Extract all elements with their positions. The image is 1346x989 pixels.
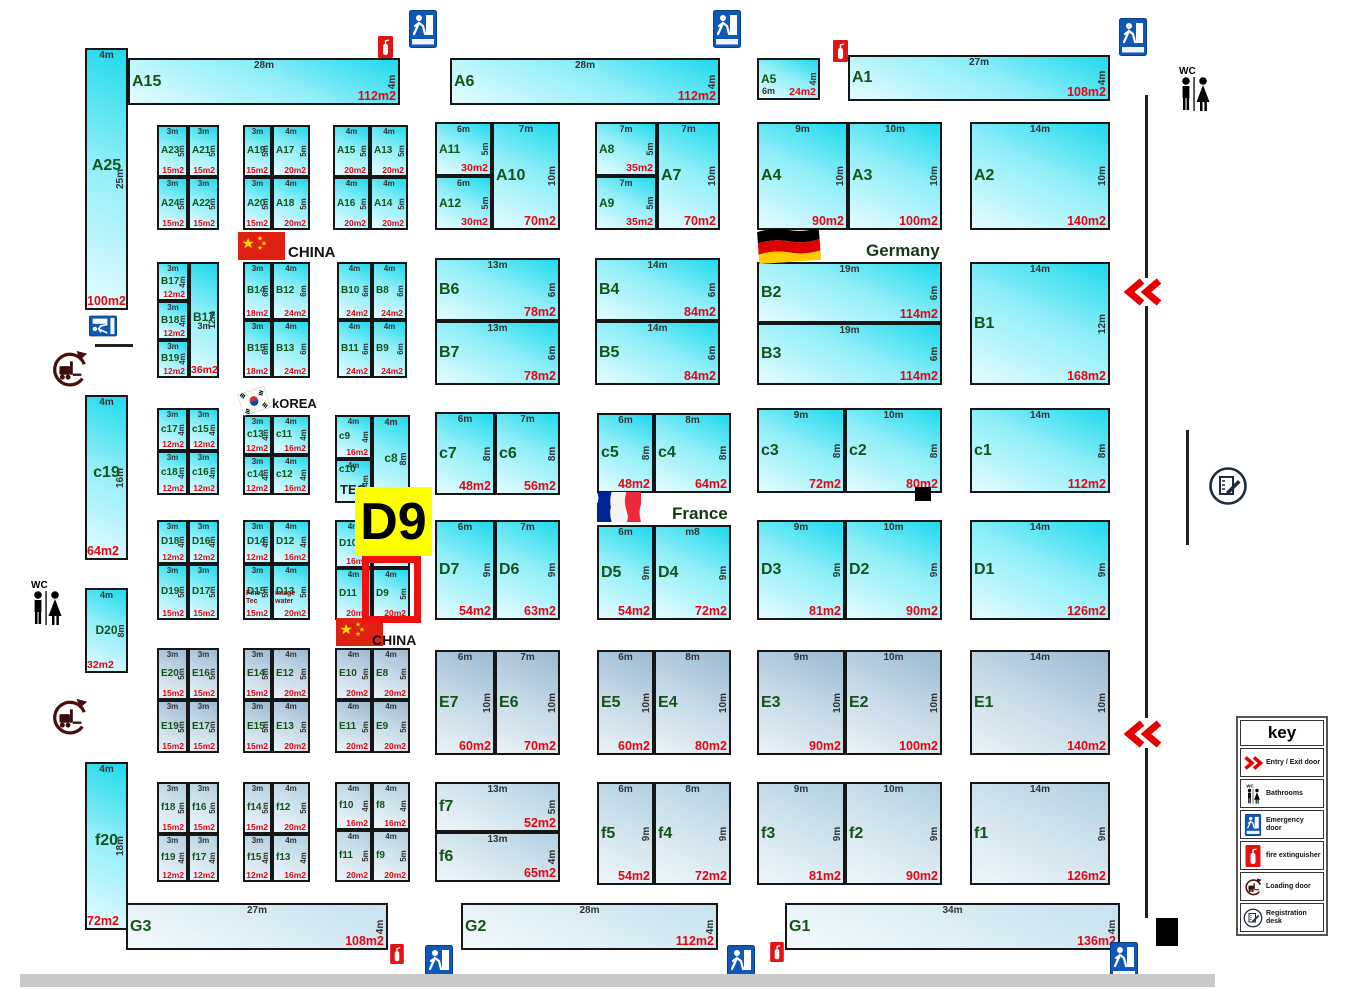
booth-id-label: B9: [376, 344, 389, 354]
booth-E17[interactable]: 3m5mE1715m2: [188, 700, 219, 753]
booth-width-label: 3m: [159, 651, 186, 659]
booth-id-label: c18: [161, 468, 178, 478]
booth-depth-label: 4m: [300, 536, 308, 548]
booth-D12[interactable]: 4m4mD1216m2: [272, 520, 310, 564]
booth-width-label: 3m: [159, 265, 187, 273]
booth-id-label: f11: [339, 851, 353, 861]
booth-D17[interactable]: 3m5mD1715m2: [188, 564, 219, 620]
booth-B14[interactable]: 3m6mB1418m2: [243, 262, 272, 320]
booth-width-label: 4m: [374, 418, 408, 427]
booth-width-label: 3m: [159, 837, 186, 845]
booth-depth-label: 9m: [548, 563, 558, 577]
booth-id-label: D3: [761, 562, 781, 578]
booth-width-label: 4m: [274, 651, 308, 659]
booth-c18[interactable]: 3m4mc1812m2: [157, 451, 188, 495]
booth-area-label: 15m2: [162, 689, 184, 698]
booth-G3[interactable]: 27m4mG3108m2: [126, 903, 388, 950]
booth-f4[interactable]: 8m9mf472m2: [654, 782, 731, 885]
booth-width-label: 3m: [190, 785, 217, 793]
booth-B17[interactable]: 12m3mB1736m2: [189, 262, 219, 378]
booth-f11[interactable]: 4m5mf1120m2: [335, 830, 372, 882]
booth-width-label: 7m: [597, 179, 655, 188]
booth-width-label: 4m: [274, 458, 308, 466]
booth-width-label: 13m: [437, 324, 558, 334]
booth-D15[interactable]: 3m5mD15Fine Tec15m2: [243, 564, 272, 620]
booth-id-label: B15: [247, 344, 265, 354]
booth-area-label: 16m2: [284, 871, 306, 880]
booth-A8[interactable]: 7m5mA835m2: [595, 122, 657, 176]
booth-area-label: 16m2: [284, 444, 306, 453]
fire-extinguisher-icon: [770, 942, 784, 962]
booth-depth-label: 4m: [388, 74, 398, 88]
booth-A19[interactable]: 3m5mA1915m2: [243, 125, 272, 177]
booth-depth-label: 5m: [362, 721, 370, 733]
booth-B8[interactable]: 4m6mB824m2: [372, 262, 407, 320]
booth-width-label: 4m: [274, 180, 308, 188]
booth-id-label: B10: [341, 286, 359, 296]
booth-depth-label: 4m: [376, 919, 386, 933]
booth-area-label: 72m2: [695, 870, 727, 883]
booth-A22[interactable]: 3m5mA2215m2: [188, 177, 219, 230]
booth-width-label: 3m: [245, 418, 270, 426]
booth-width-label: 4m: [374, 833, 408, 841]
booth-width-label: 6m: [599, 653, 652, 663]
booth-id-label: c10: [339, 465, 356, 475]
booth-id-label: B13: [276, 344, 294, 354]
booth-depth-label: 5m: [400, 668, 408, 680]
booth-B17[interactable]: 3m4mB1712m2: [157, 262, 189, 301]
booth-width-label: 6m: [599, 528, 652, 538]
booth-G2[interactable]: 28m4mG2112m2: [461, 903, 718, 950]
booth-D18[interactable]: 3m4mD1812m2: [157, 520, 188, 564]
booth-D5[interactable]: 6m9mD554m2: [597, 525, 654, 620]
booth-id-label: A25: [87, 158, 126, 174]
emergency-exit-icon: [1243, 814, 1263, 836]
booth-depth-label: 4m: [179, 276, 187, 288]
booth-depth-label: 9m: [930, 826, 940, 840]
booth-width-label: 28m: [452, 61, 718, 71]
booth-D2[interactable]: 10m9mD290m2: [845, 520, 942, 620]
booth-id-label: E19: [161, 722, 179, 732]
booth-id-label: f12: [276, 803, 290, 813]
wc-icon: WC: [1243, 783, 1263, 805]
booth-depth-label: 4m: [179, 353, 187, 365]
booth-c11[interactable]: 4m4mc1116m2: [272, 415, 310, 455]
booth-f12[interactable]: 4m5mf1220m2: [272, 782, 310, 834]
booth-width-label: 6m: [437, 523, 493, 533]
booth-depth-label: 6m: [708, 282, 718, 296]
booth-area-label: 20m2: [344, 166, 366, 175]
booth-area-label: 12m2: [246, 553, 268, 562]
booth-A3[interactable]: 10m10mA3100m2: [848, 122, 942, 230]
booth-area-label: 81m2: [809, 605, 841, 618]
booth-depth-label: 8m: [642, 446, 652, 460]
booth-A4[interactable]: 9m10mA490m2: [757, 122, 848, 230]
booth-depth-label: 9m: [642, 826, 652, 840]
booth-area-label: 56m2: [524, 480, 556, 493]
emergency-exit-icon: [409, 10, 437, 48]
booth-f2[interactable]: 10m9mf290m2: [845, 782, 942, 885]
booth-width-label: 4m: [374, 265, 405, 273]
booth-id-label: A12: [439, 197, 461, 209]
booth-width-label: 4m: [87, 591, 126, 600]
booth-id-label: B2: [761, 285, 781, 301]
booth-id-label: E11: [339, 722, 356, 732]
booth-area-label: 16m2: [284, 484, 306, 493]
booth-area-label: 140m2: [1067, 740, 1106, 753]
booth-D7[interactable]: 6m9mD754m2: [435, 520, 495, 620]
booth-E15[interactable]: 3m5mE1515m2: [243, 700, 272, 753]
booth-area-label: 108m2: [1067, 86, 1106, 99]
booth-area-label: 70m2: [684, 215, 716, 228]
booth-f5[interactable]: 6m9mf554m2: [597, 782, 654, 885]
booth-id-label: A20: [247, 199, 265, 209]
booth-B5[interactable]: 14m6mB584m2: [595, 321, 720, 385]
booth-width-label: 9m: [759, 523, 843, 533]
booth-E19[interactable]: 3m5mE1915m2: [157, 700, 188, 753]
booth-area-label: 12m2: [193, 871, 215, 880]
booth-depth-label: 5m: [178, 802, 186, 814]
booth-id-label: c7: [439, 446, 457, 462]
booth-area-label: 114m2: [900, 308, 938, 321]
booth-width-label: 3m: [190, 523, 217, 531]
booth-E1[interactable]: 14m10mE1140m2: [970, 650, 1110, 755]
booth-D6[interactable]: 7m9mD663m2: [495, 520, 560, 620]
booth-c4[interactable]: 8m8mc464m2: [654, 413, 731, 493]
booth-width-label: 3m: [245, 180, 270, 188]
booth-depth-label: 10m: [930, 166, 940, 186]
booth-D13[interactable]: 4m5mD13image water20m2: [272, 564, 310, 620]
booth-area-label: 30m2: [461, 217, 488, 228]
booth-width-label: 3m: [190, 128, 217, 136]
booth-f19[interactable]: 3m4mf1912m2: [157, 834, 188, 882]
map-key-legend: key Entry / Exit doorWCBathroomsEmergenc…: [1236, 716, 1328, 936]
booth-depth-label: 5m: [646, 142, 655, 155]
svg-text:WC: WC: [1179, 66, 1196, 77]
booth-c15[interactable]: 3m4mc1512m2: [188, 408, 219, 451]
booth-width-label: 3m: [159, 567, 186, 575]
booth-B1[interactable]: 14m12mB1168m2: [970, 262, 1110, 385]
booth-A16[interactable]: 4m5mA1620m2: [333, 177, 370, 230]
booth-width-label: 6m: [437, 179, 490, 188]
booth-depth-label: 8m: [548, 446, 558, 460]
booth-A12[interactable]: 6m5mA1230m2: [435, 176, 492, 230]
booth-area-label: 60m2: [459, 740, 491, 753]
booth-id-label: c8: [374, 452, 408, 464]
booth-width-label: 4m: [374, 651, 408, 659]
booth-id-label: E20: [161, 669, 179, 679]
booth-c3[interactable]: 9m8mc372m2: [757, 408, 845, 493]
booth-depth-label: 5m: [300, 198, 308, 210]
booth-width-label: 4m: [339, 265, 370, 273]
booth-id-label: c3: [761, 443, 779, 459]
booth-width-label: 4m: [87, 51, 126, 61]
booth-A21[interactable]: 3m5mA2115m2: [188, 125, 219, 177]
booth-id-label: A2: [974, 168, 994, 184]
booth-f3[interactable]: 9m9mf381m2: [757, 782, 845, 885]
entry-exit-chevrons-icon: [1243, 752, 1263, 774]
booth-D1[interactable]: 14m9mD1126m2: [970, 520, 1110, 620]
booth-area-label: 12m2: [162, 440, 184, 449]
booth-area-label: 20m2: [284, 689, 306, 698]
booth-c14[interactable]: 3m4mc1412m2: [243, 455, 272, 495]
booth-id-label: A24: [161, 199, 179, 209]
booth-A10[interactable]: 7m10mA1070m2: [492, 122, 560, 230]
booth-id-label: E17: [192, 722, 210, 732]
booth-id-label: f13: [276, 853, 290, 863]
booth-D16[interactable]: 3m4mD1612m2: [188, 520, 219, 564]
booth-E14[interactable]: 3m5mE1415m2: [243, 648, 272, 700]
booth-depth-label: 8m: [833, 443, 843, 457]
booth-area-label: 100m2: [899, 740, 938, 753]
booth-area-label: 64m2: [695, 478, 727, 491]
booth-id-label: A8: [599, 143, 614, 155]
booth-B15[interactable]: 3m6mB1518m2: [243, 320, 272, 378]
booth-B10[interactable]: 4m6mB1024m2: [337, 262, 372, 320]
wall-line: [95, 344, 133, 347]
svg-text:WC: WC: [31, 580, 48, 591]
booth-E3[interactable]: 9m10mE390m2: [757, 650, 845, 755]
booth-B13[interactable]: 4m6mB1324m2: [272, 320, 310, 378]
booth-A15[interactable]: 28m4mA15112m2: [128, 58, 400, 105]
booth-area-label: 15m2: [193, 689, 215, 698]
booth-width-label: 14m: [597, 324, 718, 334]
booth-id-label: E5: [601, 695, 621, 711]
booth-depth-label: 6m: [930, 347, 940, 361]
booth-id-label: A7: [661, 168, 681, 184]
booth-width-label: 3m: [245, 837, 270, 845]
booth-area-label: 20m2: [382, 219, 404, 228]
booth-c19[interactable]: 4m16mc1964m2: [85, 395, 128, 560]
booth-area-label: 15m2: [246, 823, 268, 832]
booth-width-label: 8m: [656, 785, 729, 795]
booth-c7[interactable]: 6m8mc748m2: [435, 412, 495, 495]
booth-id-label: f7: [439, 799, 453, 815]
booth-E11[interactable]: 4m5mE1120m2: [335, 700, 372, 753]
booth-E4[interactable]: 8m10mE480m2: [654, 650, 731, 755]
key-title: key: [1240, 720, 1324, 746]
booth-width-label: 4m: [337, 833, 370, 841]
booth-E2[interactable]: 10m10mE2100m2: [845, 650, 942, 755]
booth-area-label: 20m2: [346, 742, 368, 751]
booth-id-label: E7: [439, 695, 459, 711]
booth-id-label: D17: [192, 587, 210, 597]
booth-E8[interactable]: 4m5mE820m2: [372, 648, 410, 700]
booth-B19[interactable]: 3m4mB1912m2: [157, 340, 189, 378]
booth-area-label: 15m2: [193, 219, 215, 228]
booth-B7[interactable]: 13m6mB778m2: [435, 321, 560, 385]
booth-B18[interactable]: 3m4mB1812m2: [157, 301, 189, 340]
booth-id-label: c14: [247, 470, 264, 480]
booth-id-label: c19: [87, 465, 126, 481]
booth-area-label: 112m2: [678, 90, 716, 103]
booth-depth-label: 5m: [178, 721, 186, 733]
booth-A18[interactable]: 4m5mA1820m2: [272, 177, 310, 230]
booth-A20[interactable]: 3m5mA2015m2: [243, 177, 272, 230]
booth-B11[interactable]: 4m6mB1124m2: [337, 320, 372, 378]
booth-width-label: 4m: [337, 703, 370, 711]
booth-E12[interactable]: 4m5mE1220m2: [272, 648, 310, 700]
d9-highlight-label: D9: [355, 487, 432, 556]
booth-c5[interactable]: 6m8mc548m2: [597, 413, 654, 493]
booth-depth-label: 6m: [397, 285, 405, 297]
booth-depth-label: 5m: [300, 721, 308, 733]
booth-D20[interactable]: 4m8mD2032m2: [85, 588, 128, 673]
booth-E20[interactable]: 3m5mE2015m2: [157, 648, 188, 700]
booth-depth-label: 12m: [1098, 313, 1108, 333]
booth-id-label: D20: [87, 624, 126, 636]
booth-id-label: c4: [658, 445, 676, 461]
booth-depth-label: 4m: [300, 429, 308, 441]
booth-c17[interactable]: 3m4mc1712m2: [157, 408, 188, 451]
booth-width-label: 3m: [245, 651, 270, 659]
booth-width-label: 8m: [656, 653, 729, 663]
booth-width-label: 6m: [762, 87, 775, 96]
svg-text:★: ★: [339, 623, 353, 638]
booth-G1[interactable]: 34m4mG1136m2: [785, 903, 1120, 950]
booth-id-label: G1: [789, 919, 810, 935]
booth-width-label: 6m: [599, 785, 652, 795]
booth-depth-label: 10m: [1098, 692, 1108, 712]
booth-D19[interactable]: 3m5mD1915m2: [157, 564, 188, 620]
svg-text:★: ★: [241, 237, 255, 252]
booth-D14[interactable]: 3m4mD1412m2: [243, 520, 272, 564]
booth-A7[interactable]: 7m10mA770m2: [657, 122, 720, 230]
booth-depth-label: 6m: [930, 285, 940, 299]
booth-A15[interactable]: 4m5mA1520m2: [333, 125, 370, 177]
booth-area-label: 70m2: [524, 215, 556, 228]
booth-id-label: E9: [376, 722, 388, 732]
booth-area-label: 81m2: [809, 870, 841, 883]
booth-E5[interactable]: 6m10mE560m2: [597, 650, 654, 755]
booth-area-label: 84m2: [684, 306, 716, 319]
booth-f16[interactable]: 3m5mf1615m2: [188, 782, 219, 834]
booth-f6[interactable]: 13m4mf665m2: [435, 832, 560, 882]
booth-area-label: 15m2: [246, 609, 268, 618]
booth-A14[interactable]: 4m5mA1420m2: [370, 177, 408, 230]
svg-text:WC: WC: [1246, 783, 1254, 788]
booth-id-label: A18: [276, 199, 294, 209]
booth-c1[interactable]: 14m8mc1112m2: [970, 408, 1110, 493]
booth-A24[interactable]: 3m5mA2415m2: [157, 177, 188, 230]
booth-id-label: f20: [87, 833, 126, 849]
booth-A2[interactable]: 14m10mA2140m2: [970, 122, 1110, 230]
booth-area-label: 16m2: [284, 553, 306, 562]
booth-A1[interactable]: 27m4mA1108m2: [848, 55, 1110, 101]
booth-A5[interactable]: 4m6mA524m2: [757, 58, 820, 100]
booth-depth-label: 9m: [719, 565, 729, 579]
booth-f14[interactable]: 3m5mf1415m2: [243, 782, 272, 834]
booth-depth-label: 5m: [209, 802, 217, 814]
booth-depth-label: 6m: [708, 346, 718, 360]
key-item-entry-exit-door: Entry / Exit door: [1240, 748, 1324, 777]
booth-area-label: 168m2: [1067, 370, 1106, 383]
booth-f8[interactable]: 4m4mf816m2: [372, 782, 410, 830]
booth-B4[interactable]: 14m6mB484m2: [595, 258, 720, 321]
booth-id-label: G3: [130, 919, 151, 935]
booth-width-label: 7m: [597, 125, 655, 134]
booth-A23[interactable]: 3m5mA2315m2: [157, 125, 188, 177]
booth-area-label: 114m2: [900, 370, 938, 383]
booth-c2[interactable]: 10m8mc280m2: [845, 408, 942, 493]
booth-f9[interactable]: 4m5mf920m2: [372, 830, 410, 882]
booth-A9[interactable]: 7m5mA935m2: [595, 176, 657, 230]
booth-A25[interactable]: 4m25mA25100m2: [85, 48, 128, 310]
booth-f1[interactable]: 14m9mf1126m2: [970, 782, 1110, 885]
booth-f18[interactable]: 3m5mf1815m2: [157, 782, 188, 834]
booth-area-label: 15m2: [193, 823, 215, 832]
booth-B2[interactable]: 19m6mB2114m2: [757, 262, 942, 323]
booth-id-label: c17: [161, 425, 178, 435]
booth-width-label: 3m: [245, 128, 270, 136]
booth-E10[interactable]: 4m5mE1020m2: [335, 648, 372, 700]
booth-width-label: 7m: [494, 125, 558, 135]
booth-depth-label: 5m: [300, 802, 308, 814]
booth-f13[interactable]: 4m4mf1316m2: [272, 834, 310, 882]
booth-B9[interactable]: 4m6mB924m2: [372, 320, 407, 378]
booth-B6[interactable]: 13m6mB678m2: [435, 258, 560, 321]
booth-E16[interactable]: 3m5mE1615m2: [188, 648, 219, 700]
booth-area-label: 16m2: [346, 448, 368, 457]
fire-extinguisher-icon: [390, 944, 404, 964]
booth-area-label: 12m2: [246, 444, 268, 453]
booth-width-label: 4m: [337, 785, 370, 793]
booth-id-label: D14: [247, 537, 265, 547]
booth-id-label: A4: [761, 168, 781, 184]
booth-c16[interactable]: 3m4mc1612m2: [188, 451, 219, 495]
booth-area-label: 20m2: [346, 689, 368, 698]
booth-area-label: 20m2: [284, 823, 306, 832]
booth-B12[interactable]: 4m6mB1224m2: [272, 262, 310, 320]
fire-extinguisher-icon: [1243, 845, 1263, 867]
booth-A13[interactable]: 4m5mA1320m2: [370, 125, 408, 177]
booth-E13[interactable]: 4m5mE1320m2: [272, 700, 310, 753]
booth-depth-label: 4m: [708, 74, 718, 88]
booth-f10[interactable]: 4m4mf1016m2: [335, 782, 372, 830]
booth-width-label: 4m: [274, 837, 308, 845]
booth-E7[interactable]: 6m10mE760m2: [435, 650, 495, 755]
booth-id-label: B7: [439, 345, 459, 361]
booth-D3[interactable]: 9m9mD381m2: [757, 520, 845, 620]
booth-area-label: 112m2: [676, 935, 714, 948]
booth-id-label: c9: [339, 432, 350, 442]
booth-depth-label: 4m: [209, 424, 217, 436]
booth-E9[interactable]: 4m5mE920m2: [372, 700, 410, 753]
booth-D4[interactable]: m89mD472m2: [654, 525, 731, 620]
booth-A11[interactable]: 6m5mA1130m2: [435, 122, 492, 176]
booth-c13[interactable]: 3m4mc1312m2: [243, 415, 272, 455]
booth-id-label: D16: [192, 537, 210, 547]
booth-A17[interactable]: 4m5mA1720m2: [272, 125, 310, 177]
booth-area-label: 108m2: [345, 935, 384, 948]
booth-f17[interactable]: 3m4mf1712m2: [188, 834, 219, 882]
booth-B3[interactable]: 19m6mB3114m2: [757, 323, 942, 385]
booth-f20[interactable]: 4m18mf2072m2: [85, 762, 128, 930]
booth-area-label: 72m2: [695, 605, 727, 618]
booth-width-label: 3m: [159, 785, 186, 793]
booth-f7[interactable]: 13m5mf752m2: [435, 782, 560, 832]
booth-c12[interactable]: 4m4mc1216m2: [272, 455, 310, 495]
booth-f15[interactable]: 3m4mf1512m2: [243, 834, 272, 882]
booth-width-label: 7m: [497, 523, 558, 533]
booth-E6[interactable]: 7m10mE670m2: [495, 650, 560, 755]
booth-depth-label: 5m: [178, 668, 186, 680]
emergency-exit-icon: [713, 10, 741, 48]
booth-id-label: f2: [849, 826, 863, 842]
booth-A6[interactable]: 28m4mA6112m2: [450, 58, 720, 105]
booth-c9[interactable]: 4m4mc916m2: [335, 415, 372, 459]
booth-c6[interactable]: 7m8mc656m2: [495, 412, 560, 495]
